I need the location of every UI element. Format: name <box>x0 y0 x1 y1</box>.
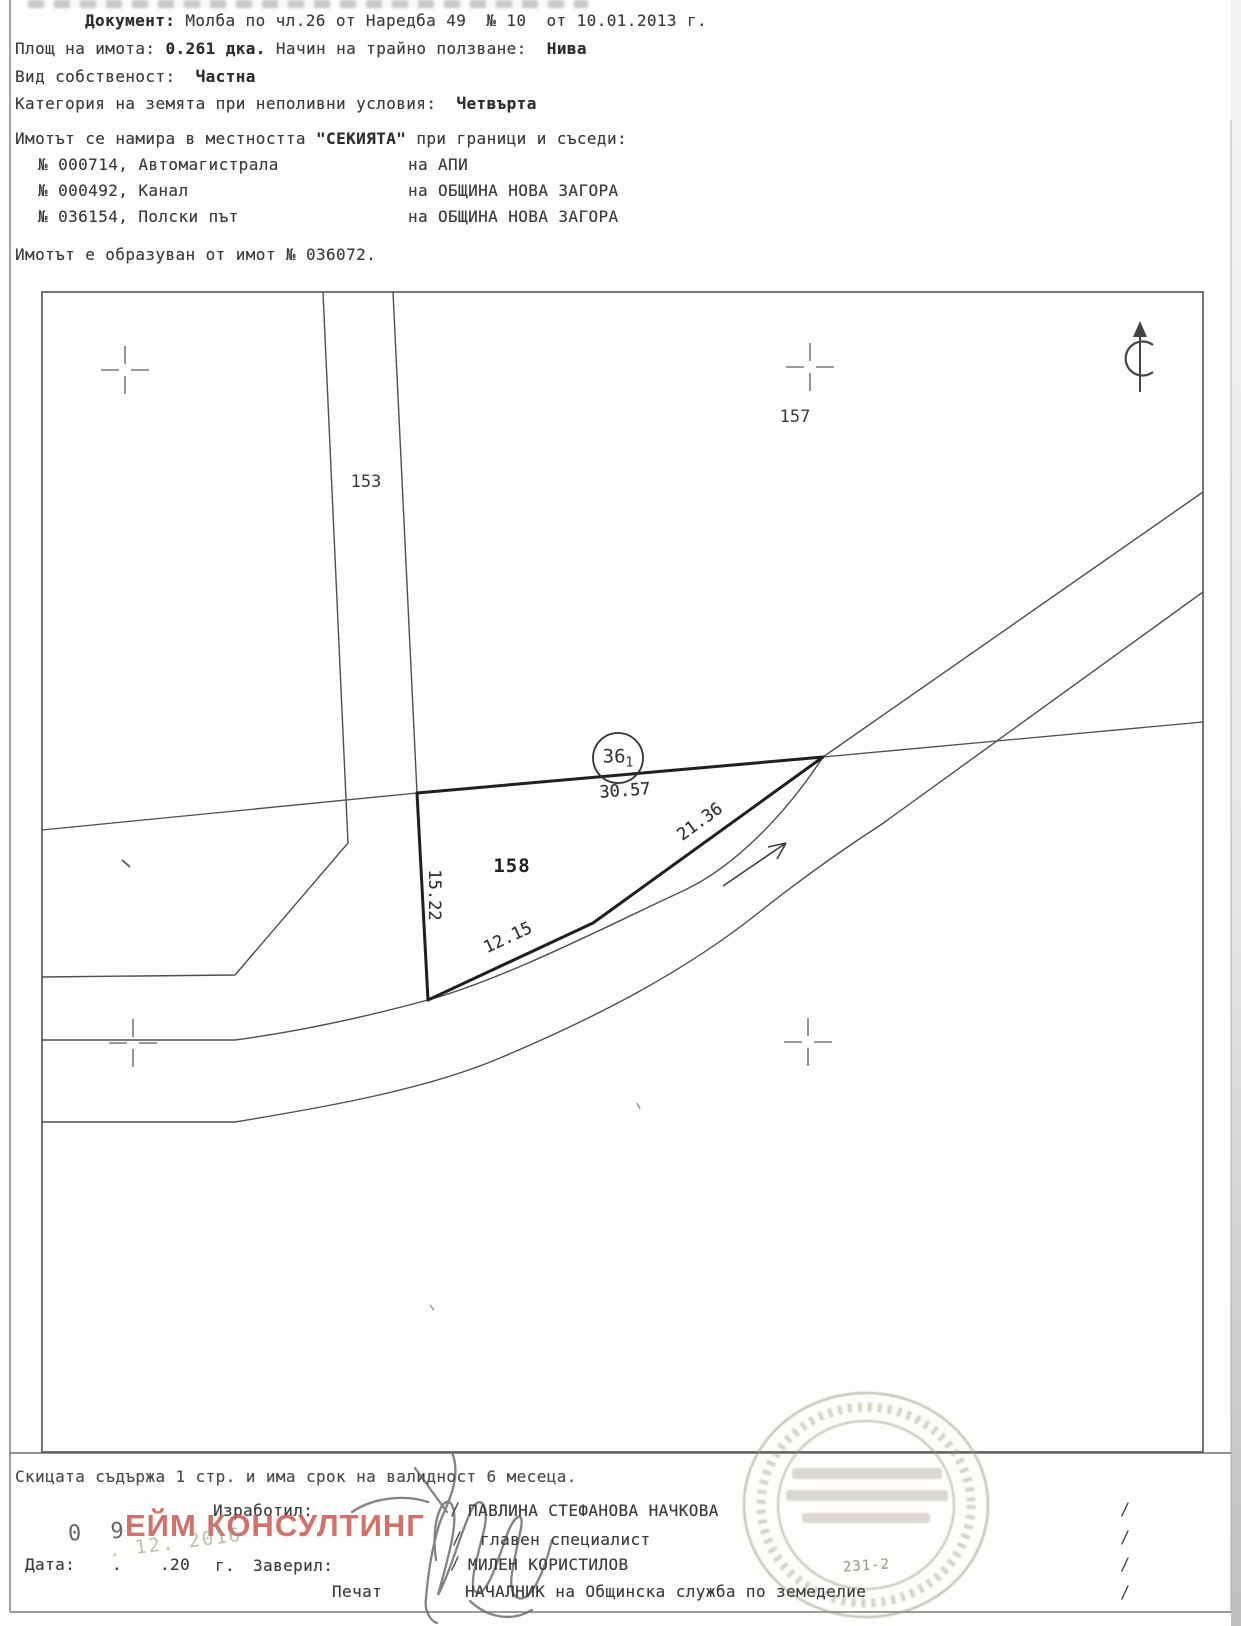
road-direction-arrow-icon <box>723 843 786 886</box>
ownership-value: Частна <box>196 67 256 86</box>
author-title: главен специалист <box>480 1531 651 1549</box>
area-value: 0.261 дка. <box>166 39 266 58</box>
border-point-sub: 1 <box>626 756 634 771</box>
stamp-number: 231-2 <box>842 1556 890 1575</box>
document-label: Документ: <box>85 11 175 30</box>
grid-cross-icon-bottom-right <box>784 1018 832 1066</box>
grid-cross-icon-top-left <box>101 346 149 394</box>
parcel-number-label: 158 <box>493 855 530 877</box>
scan-speck <box>122 860 130 867</box>
neighbor-row-owner: АПИ <box>438 156 468 174</box>
location-name: "СЕКИЯТА" <box>316 129 406 148</box>
neighbor-row-owner: ОБЩИНА НОВА ЗАГОРА <box>438 208 619 226</box>
usage-value: Нива <box>547 39 587 58</box>
road-lower-curve <box>42 592 1203 1122</box>
form-slash: / <box>1120 1555 1130 1575</box>
area-line: Площ на имота: 0.261 дка. Начин на трайн… <box>15 40 587 58</box>
map-frame <box>42 292 1203 1452</box>
map-drawing <box>0 0 1241 1626</box>
verifier-name: МИЛЕН КОРИСТИЛОВ <box>468 1556 629 1574</box>
neighbor-row-name: № 036154, Полски път <box>38 208 239 226</box>
signature-slash: / <box>450 1554 460 1574</box>
date-label: Дата: <box>25 1556 75 1574</box>
neighbor-row-na: на <box>408 182 428 200</box>
form-slash: / <box>1120 1500 1130 1520</box>
verifier-title: НАЧАЛНИК на Общинска служба по земеделие <box>465 1583 866 1601</box>
scanned-cadastral-sketch: Документ: Молба по чл.26 от Наредба 49 №… <box>0 0 1241 1626</box>
verify-label: Заверил: <box>253 1557 333 1575</box>
neighbor-row-name: № 000714, Автомагистрала <box>38 156 279 174</box>
border-point-main: 36 <box>603 746 626 768</box>
neighbor-row-owner: ОБЩИНА НОВА ЗАГОРА <box>438 182 619 200</box>
neighbor-parcel-label-153: 153 <box>351 472 382 492</box>
scan-speck <box>430 1305 434 1310</box>
category-value: Четвърта <box>456 94 536 113</box>
dimension-top: 30.57 <box>599 779 651 803</box>
border-point-label: 361 <box>603 746 634 771</box>
signature-slash: / <box>450 1500 460 1520</box>
neighbor-parcel-label-157: 157 <box>780 407 811 427</box>
neighbor-row-na: на <box>408 156 428 174</box>
location-suffix: при граници и съседи: <box>416 129 627 148</box>
grid-cross-icon-bottom-left <box>109 1019 157 1067</box>
date-g: г. <box>215 1557 235 1575</box>
ownership-label: Вид собственост: <box>15 67 176 86</box>
grid-cross-icon-top-right <box>786 343 834 391</box>
usage-label: Начин на трайно ползване: <box>276 39 527 58</box>
area-label: Площ на имота: <box>15 39 155 58</box>
date-year: .20 <box>160 1556 190 1574</box>
category-line: Категория на земята при неполивни услови… <box>15 95 537 113</box>
location-prefix: Имотът се намира в местността <box>15 129 306 148</box>
location-line: Имотът се намира в местността "СЕКИЯТА" … <box>15 130 627 148</box>
seal-label: Печат <box>332 1583 382 1601</box>
author-name: ПАВЛИНА СТЕФАНОВА НАЧКОВА <box>468 1502 719 1520</box>
category-label: Категория на земята при неполивни услови… <box>15 94 436 113</box>
scan-speck <box>637 1103 640 1109</box>
document-line: Документ: Молба по чл.26 от Наредба 49 №… <box>85 12 707 30</box>
document-value: Молба по чл.26 от Наредба 49 № 10 от 10.… <box>185 11 707 30</box>
north-arrow-icon <box>1126 321 1153 392</box>
highway-upper-line <box>823 492 1203 757</box>
field-road-left-line <box>42 292 348 977</box>
neighbor-row-name: № 000492, Канал <box>38 182 189 200</box>
form-slash: / <box>1120 1528 1130 1548</box>
validity-line: Скицата съдържа 1 стр. и има срок на вал… <box>15 1468 577 1486</box>
field-road-right-line <box>393 292 417 793</box>
signature-slash: / <box>452 1529 462 1549</box>
dimension-left: 15.22 <box>424 869 444 920</box>
ownership-line: Вид собственост: Частна <box>15 68 256 86</box>
form-slash: / <box>1120 1583 1130 1603</box>
neighbor-row-na: на <box>408 208 428 226</box>
origin-line: Имотът е образуван от имот № 036072. <box>15 246 376 264</box>
